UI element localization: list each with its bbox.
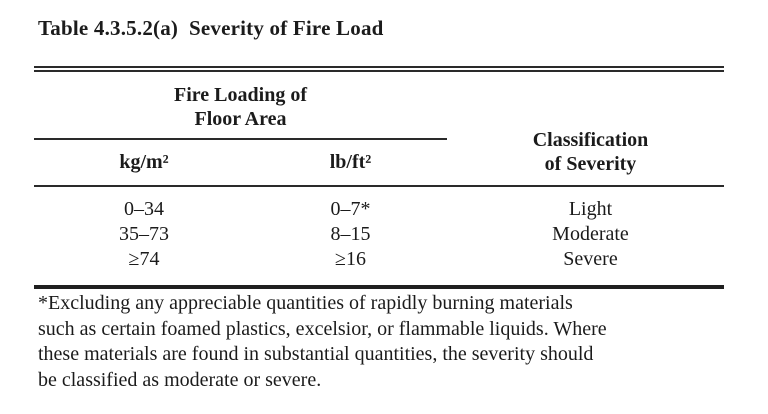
unit-header-row: kg/m² lb/ft² <box>34 140 447 185</box>
classification-header: Classification of Severity <box>447 72 724 185</box>
footnote-line: *Excluding any appreciable quantities of… <box>38 291 750 317</box>
cell-lb: 8–15 <box>254 222 447 247</box>
cell-lb: ≥16 <box>254 247 447 272</box>
footnote-line: these materials are found in substantial… <box>38 342 750 368</box>
cell-classification: Moderate <box>447 222 724 247</box>
classification-header-line1: Classification <box>457 128 724 152</box>
table-body: 0–34 0–7* Light 35–73 8–15 Moderate ≥74 … <box>34 187 724 285</box>
cell-kg: 35–73 <box>34 222 254 247</box>
document-page: Table 4.3.5.2(a) Severity of Fire Load F… <box>0 0 768 414</box>
spanner-header: Fire Loading of Floor Area <box>34 72 447 138</box>
classification-header-line2: of Severity <box>457 152 724 176</box>
table-row: ≥74 ≥16 Severe <box>34 247 724 272</box>
table-header: Fire Loading of Floor Area kg/m² lb/ft² … <box>34 72 724 185</box>
footnote-line: be classified as moderate or severe. <box>38 368 750 394</box>
table-footnote: *Excluding any appreciable quantities of… <box>38 291 750 393</box>
table-caption: Table 4.3.5.2(a) Severity of Fire Load <box>38 16 384 41</box>
table-row: 35–73 8–15 Moderate <box>34 222 724 247</box>
column-header-lb-per-ft2: lb/ft² <box>254 140 447 185</box>
bottom-rule <box>34 285 724 289</box>
spanner-header-line2: Floor Area <box>34 107 447 131</box>
table-row: 0–34 0–7* Light <box>34 197 724 222</box>
severity-of-fire-load-table: Fire Loading of Floor Area kg/m² lb/ft² … <box>34 66 724 289</box>
cell-classification: Severe <box>447 247 724 272</box>
fire-loading-header-group: Fire Loading of Floor Area kg/m² lb/ft² <box>34 72 447 185</box>
cell-classification: Light <box>447 197 724 222</box>
cell-kg: ≥74 <box>34 247 254 272</box>
spanner-header-line1: Fire Loading of <box>34 83 447 107</box>
cell-lb: 0–7* <box>254 197 447 222</box>
cell-kg: 0–34 <box>34 197 254 222</box>
footnote-line: such as certain foamed plastics, excelsi… <box>38 317 750 343</box>
column-header-kg-per-m2: kg/m² <box>34 140 254 185</box>
